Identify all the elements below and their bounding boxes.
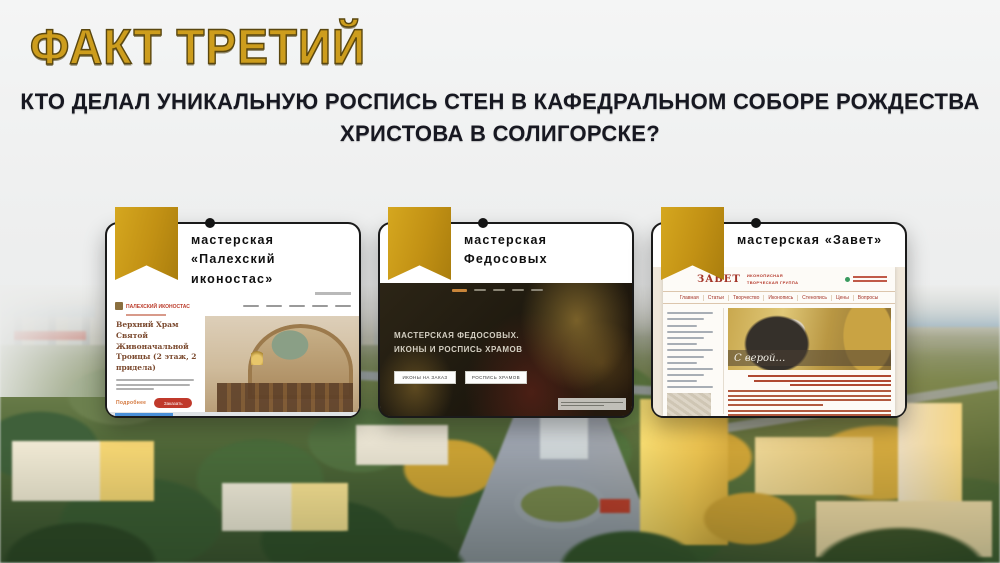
pin-dot-icon [205,218,215,228]
card-zavet[interactable]: мастерская «Завет» ЗАВЕТ ИКОНОПИСНАЯ ТВО… [651,222,907,418]
slide-title: ФАКТ ТРЕТИЙ [30,18,366,75]
workshop-cards: мастерская «Палехский иконостас» ПАЛЕХСК… [105,222,907,418]
site1-iconostasis-shape [217,383,353,412]
site1-logo-icon [115,302,123,310]
phone-icon [845,277,850,282]
card-palekhsky-ikonostas[interactable]: мастерская «Палехский иконостас» ПАЛЕХСК… [105,222,361,418]
pin-dot-icon [478,218,488,228]
site3-photo-caption-band: С верой… [728,350,891,366]
card-title: мастерская Федосовых [464,231,626,270]
photo-water-left [0,305,95,317]
site1-chandelier-shape [251,349,263,365]
site3-sidebar-links-placeholder [667,308,724,414]
site1-logo-text: ПАЛЕХСКИЙ ИКОНОСТАС [126,304,190,310]
site3-quote-placeholder [728,375,891,386]
photo-red-sign [14,331,86,340]
site3-body: С верой… [663,304,895,416]
pin-dot-icon [751,218,761,228]
site3-header: ЗАВЕТ ИКОНОПИСНАЯ ТВОРЧЕСКАЯ ГРУППА [663,267,895,291]
site3-paragraph-2-placeholder [728,410,891,416]
site2-hero-line1: МАСТЕРСКАЯ ФЕДОСОВЫХ. [394,329,523,343]
slide-question: КТО ДЕЛАЛ УНИКАЛЬНУЮ РОСПИСЬ СТЕН В КАФЕ… [0,86,1000,150]
site1-actions: Подробнее Заказать [116,398,199,408]
site1-nav-links-placeholder [243,305,351,308]
site2-hero-line2: ИКОНЫ И РОСПИСЬ ХРАМОВ [394,343,523,357]
question-line-2: ХРИСТОВА В СОЛИГОРСКЕ? [0,118,1000,150]
site1-article-heading: Верхний Храм Святой Живоначальной Троицы… [116,320,199,374]
site3-photo-caption: С верой… [734,353,785,364]
presentation-slide: ФАКТ ТРЕТИЙ КТО ДЕЛАЛ УНИКАЛЬНУЮ РОСПИСЬ… [0,0,1000,563]
site3-page: ЗАВЕТ ИКОНОПИСНАЯ ТВОРЧЕСКАЯ ГРУППА Глав… [663,267,895,416]
site1-church-interior-photo [205,316,359,412]
site3-main-column: С верой… [728,308,891,414]
site3-paragraph-1-placeholder [728,390,891,406]
site2-cookie-notice-placeholder [558,398,626,410]
site1-bottom-bar-placeholder [107,412,359,416]
site2-buttons: ИКОНЫ НА ЗАКАЗ РОСПИСЬ ХРАМОВ [394,371,527,384]
site1-red-button: Заказать [154,398,192,408]
question-line-1: КТО ДЕЛАЛ УНИКАЛЬНУЮ РОСПИСЬ СТЕН В КАФЕ… [0,86,1000,118]
site3-contact [845,276,887,282]
website-screenshot-zavet: ЗАВЕТ ИКОНОПИСНАЯ ТВОРЧЕСКАЯ ГРУППА Глав… [653,267,905,416]
site1-more-link: Подробнее [116,400,146,406]
card-fedosovy[interactable]: мастерская Федосовых МАСТЕРСКАЯ ФЕДОСОВЫ… [378,222,634,418]
site3-navbar: Главная Статьи Творчество Иконопись Стен… [663,291,895,304]
site3-phone-placeholder [853,276,887,282]
site1-navrow: ПАЛЕХСКИЙ ИКОНОСТАС [107,296,359,316]
site1-text-column: Верхний Храм Святой Живоначальной Троицы… [107,316,205,412]
site2-button-murals: РОСПИСЬ ХРАМОВ [465,371,527,384]
site2-hero-heading: МАСТЕРСКАЯ ФЕДОСОВЫХ. ИКОНЫ И РОСПИСЬ ХР… [394,329,523,356]
site2-nav-links-placeholder [452,289,543,292]
site1-logo: ПАЛЕХСКИЙ ИКОНОСТАС [115,295,190,316]
site2-button-icons: ИКОНЫ НА ЗАКАЗ [394,371,456,384]
site1-content: Верхний Храм Святой Живоначальной Троицы… [107,316,359,412]
website-screenshot-fedosovy: МАСТЕРСКАЯ ФЕДОСОВЫХ. ИКОНЫ И РОСПИСЬ ХР… [380,283,632,416]
website-screenshot-palekhsky: ПАЛЕХСКИЙ ИКОНОСТАС Верхний Храм Святой … [107,291,359,416]
site1-paragraph-placeholder [116,379,199,390]
site3-sketch-image [667,393,711,416]
card-title: мастерская «Завет» [737,231,899,250]
site3-logo-subtitle: ИКОНОПИСНАЯ ТВОРЧЕСКАЯ ГРУППА [747,273,799,285]
site3-painter-photo: С верой… [728,308,891,370]
site3-sidebar-bars [667,312,719,388]
card-title: мастерская «Палехский иконостас» [191,231,353,289]
